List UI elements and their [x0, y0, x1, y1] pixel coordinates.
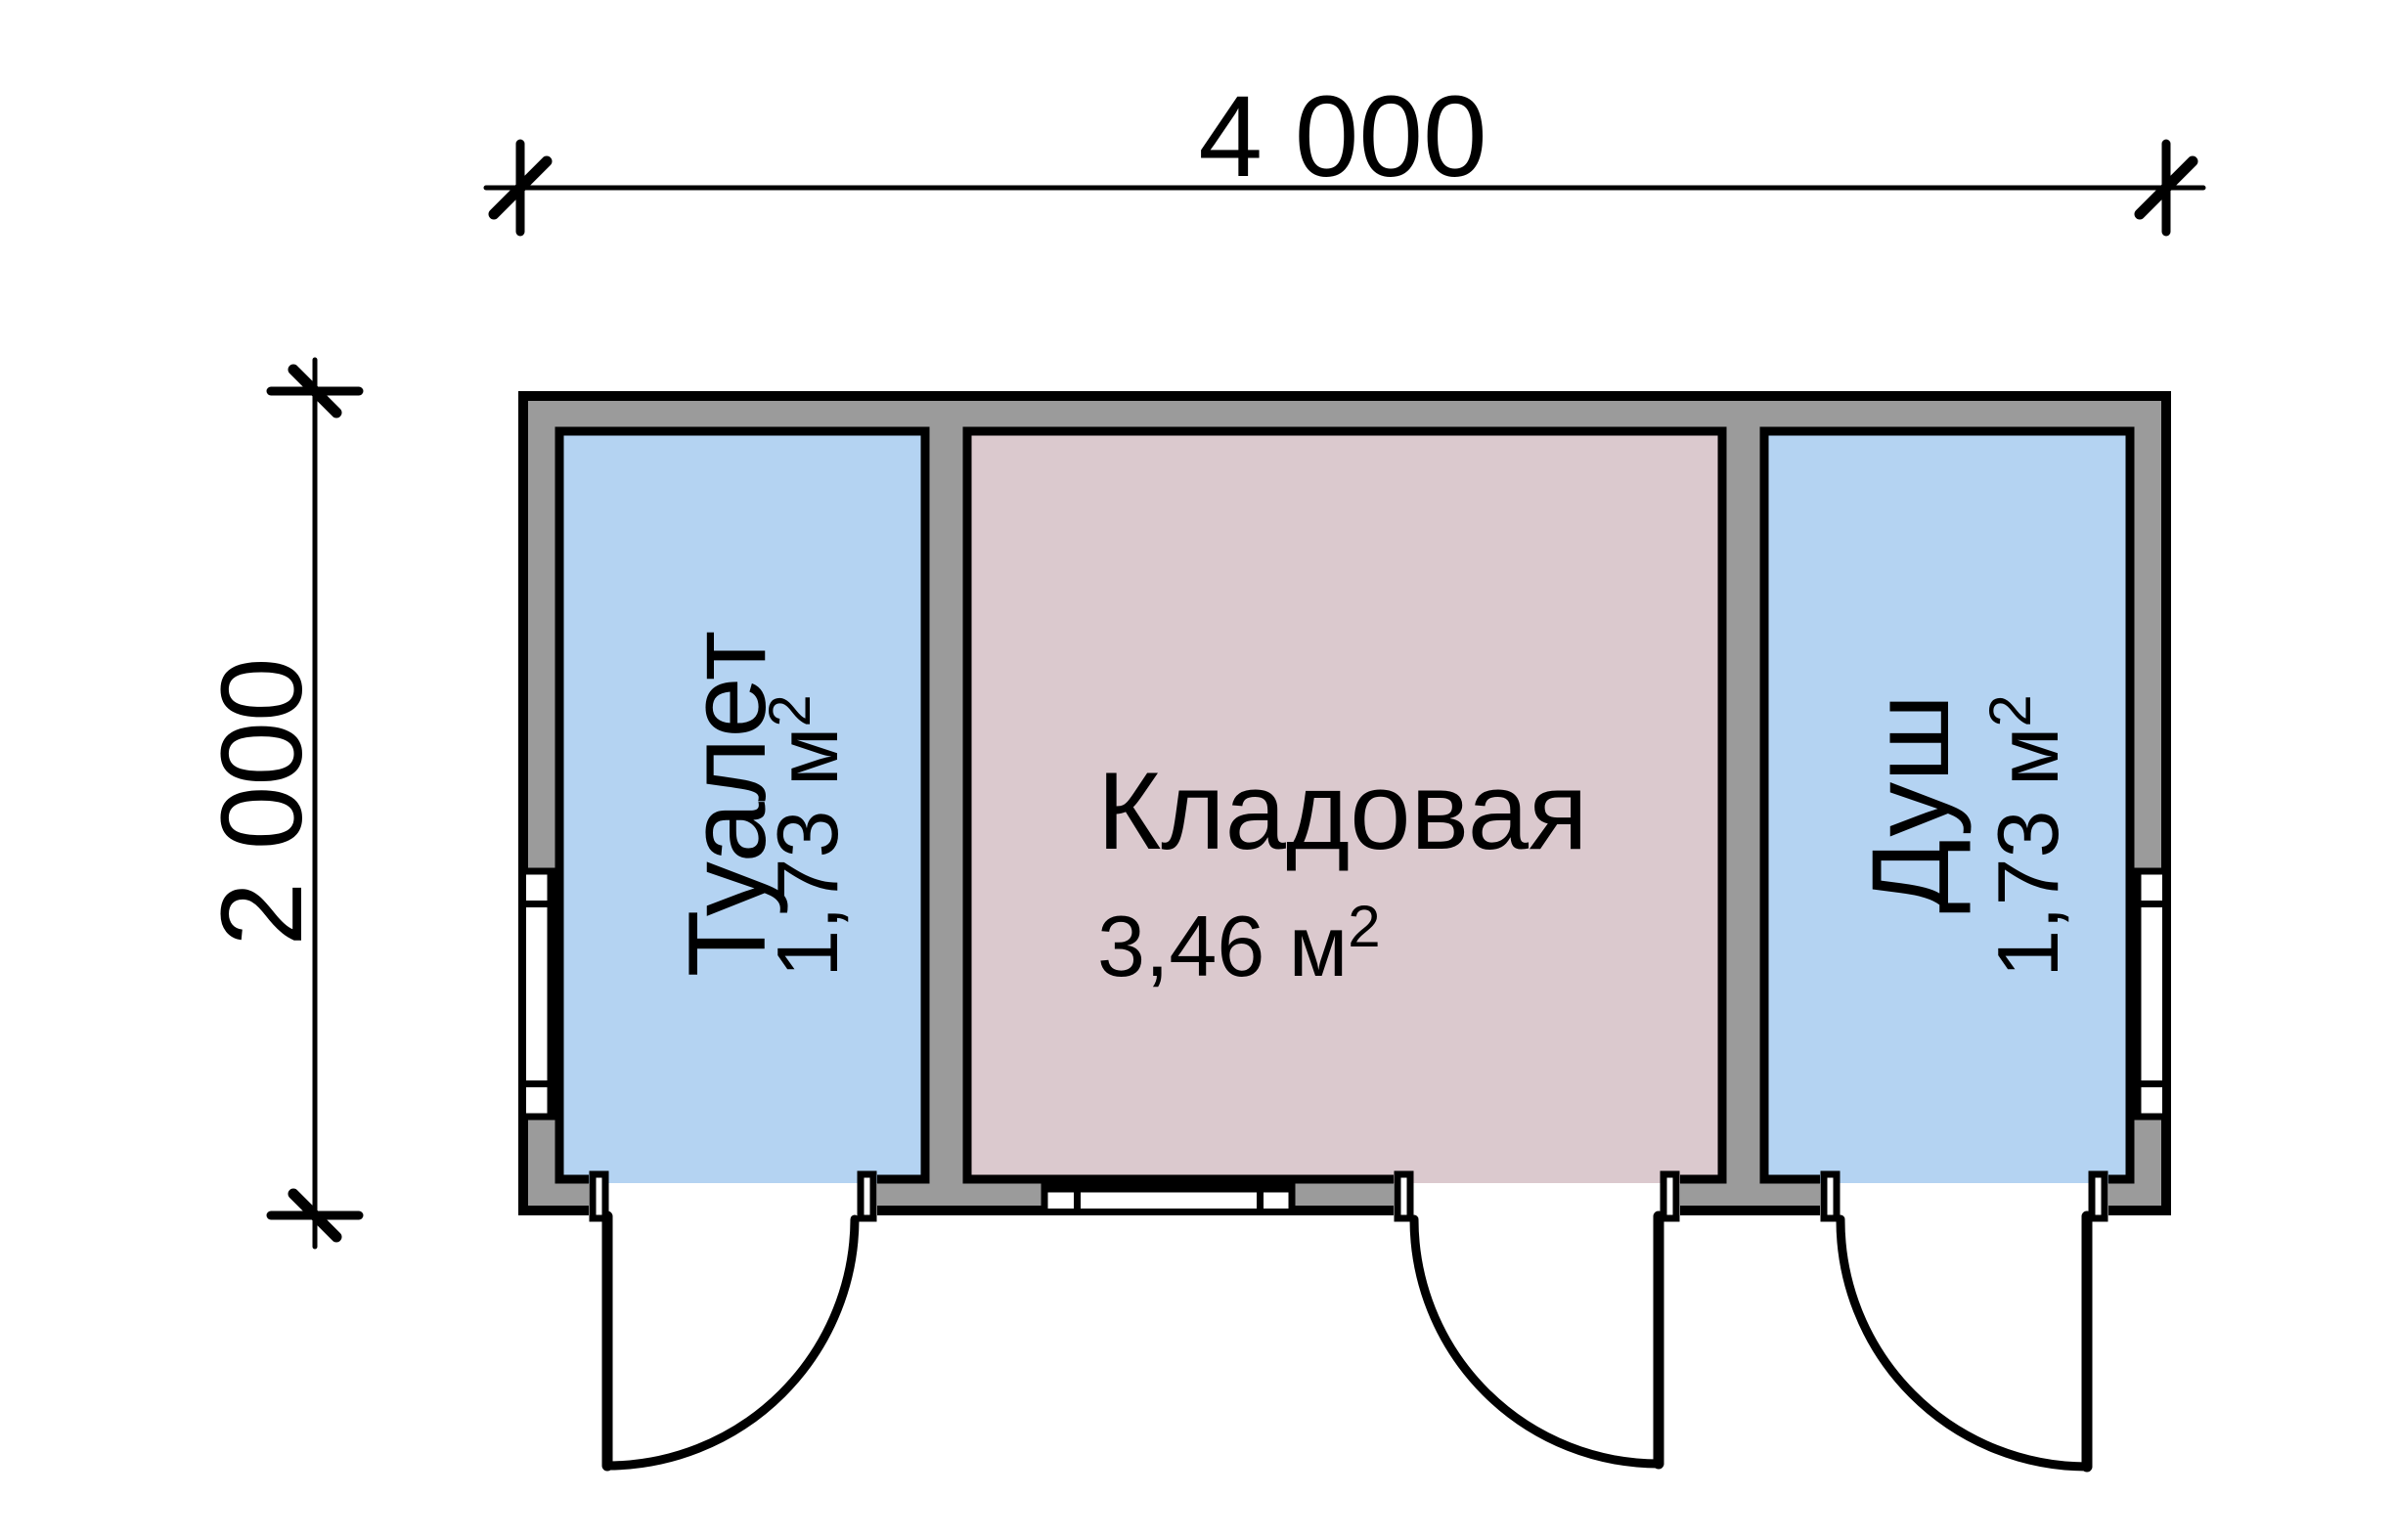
door-jamb	[2092, 1174, 2105, 1218]
door-jamb	[861, 1174, 873, 1218]
door-swing-arc	[1841, 1219, 2087, 1467]
window-left	[519, 871, 555, 1117]
door-jamb	[1663, 1174, 1676, 1218]
door-opening-shower	[1820, 1169, 2108, 1222]
door-opening-toilet	[589, 1169, 877, 1222]
window-right	[2133, 871, 2169, 1117]
door-opening-storage	[1394, 1169, 1680, 1222]
floor-plan-drawing: 4 000 2 000 Туалет 1,73 м2 Кладовая 3,46…	[0, 0, 2395, 1540]
door-jamb	[1824, 1174, 1837, 1218]
floor-plan-canvas: 4 000 2 000 Туалет 1,73 м2 Кладовая 3,46…	[0, 0, 2395, 1540]
room-toilet-area: 1,73 м2	[757, 694, 856, 978]
door-toilet	[607, 1216, 855, 1466]
room-shower-area: 1,73 м2	[1977, 694, 2076, 978]
door-shower	[1841, 1216, 2087, 1467]
door-swing-arc	[607, 1219, 855, 1466]
dimension-height-label: 2 000	[198, 657, 327, 946]
room-storage-label: Кладовая	[1097, 750, 1588, 872]
room-shower-label: Душ	[1849, 694, 1972, 913]
window-bottom	[1044, 1183, 1292, 1212]
room-storage-area: 3,46 м2	[1097, 894, 1381, 994]
door-storage	[1414, 1216, 1659, 1464]
door-jamb	[1397, 1174, 1410, 1218]
dimension-width-label: 4 000	[1198, 72, 1486, 201]
door-jamb	[593, 1174, 605, 1218]
door-swing-arc	[1414, 1219, 1659, 1464]
